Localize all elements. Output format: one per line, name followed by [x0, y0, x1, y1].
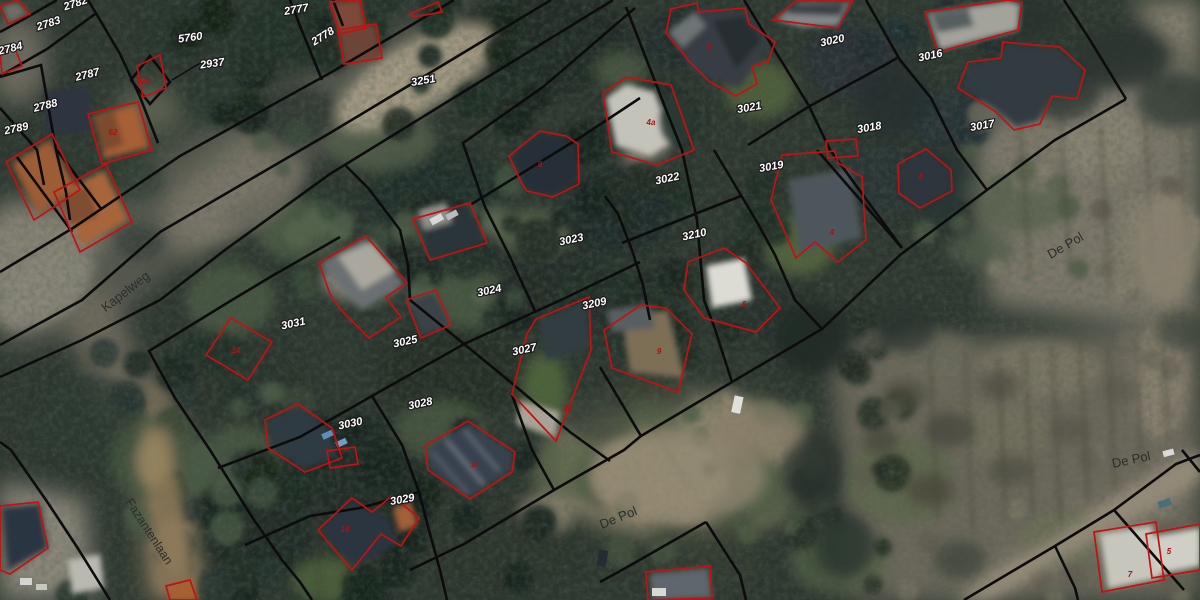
svg-text:62: 62: [109, 128, 118, 137]
svg-text:14: 14: [232, 346, 241, 355]
svg-text:4a: 4a: [646, 118, 656, 127]
svg-text:9: 9: [538, 160, 543, 169]
svg-text:62b: 62b: [137, 76, 151, 85]
svg-text:16: 16: [341, 525, 350, 534]
svg-text:7: 7: [1128, 570, 1133, 579]
svg-text:5: 5: [1167, 547, 1172, 556]
svg-text:8: 8: [919, 172, 924, 181]
svg-text:6: 6: [707, 42, 712, 51]
svg-text:17: 17: [471, 460, 480, 469]
svg-text:9: 9: [657, 347, 662, 356]
svg-text:18: 18: [564, 404, 573, 413]
svg-text:6: 6: [742, 300, 747, 309]
svg-text:4: 4: [829, 228, 835, 237]
